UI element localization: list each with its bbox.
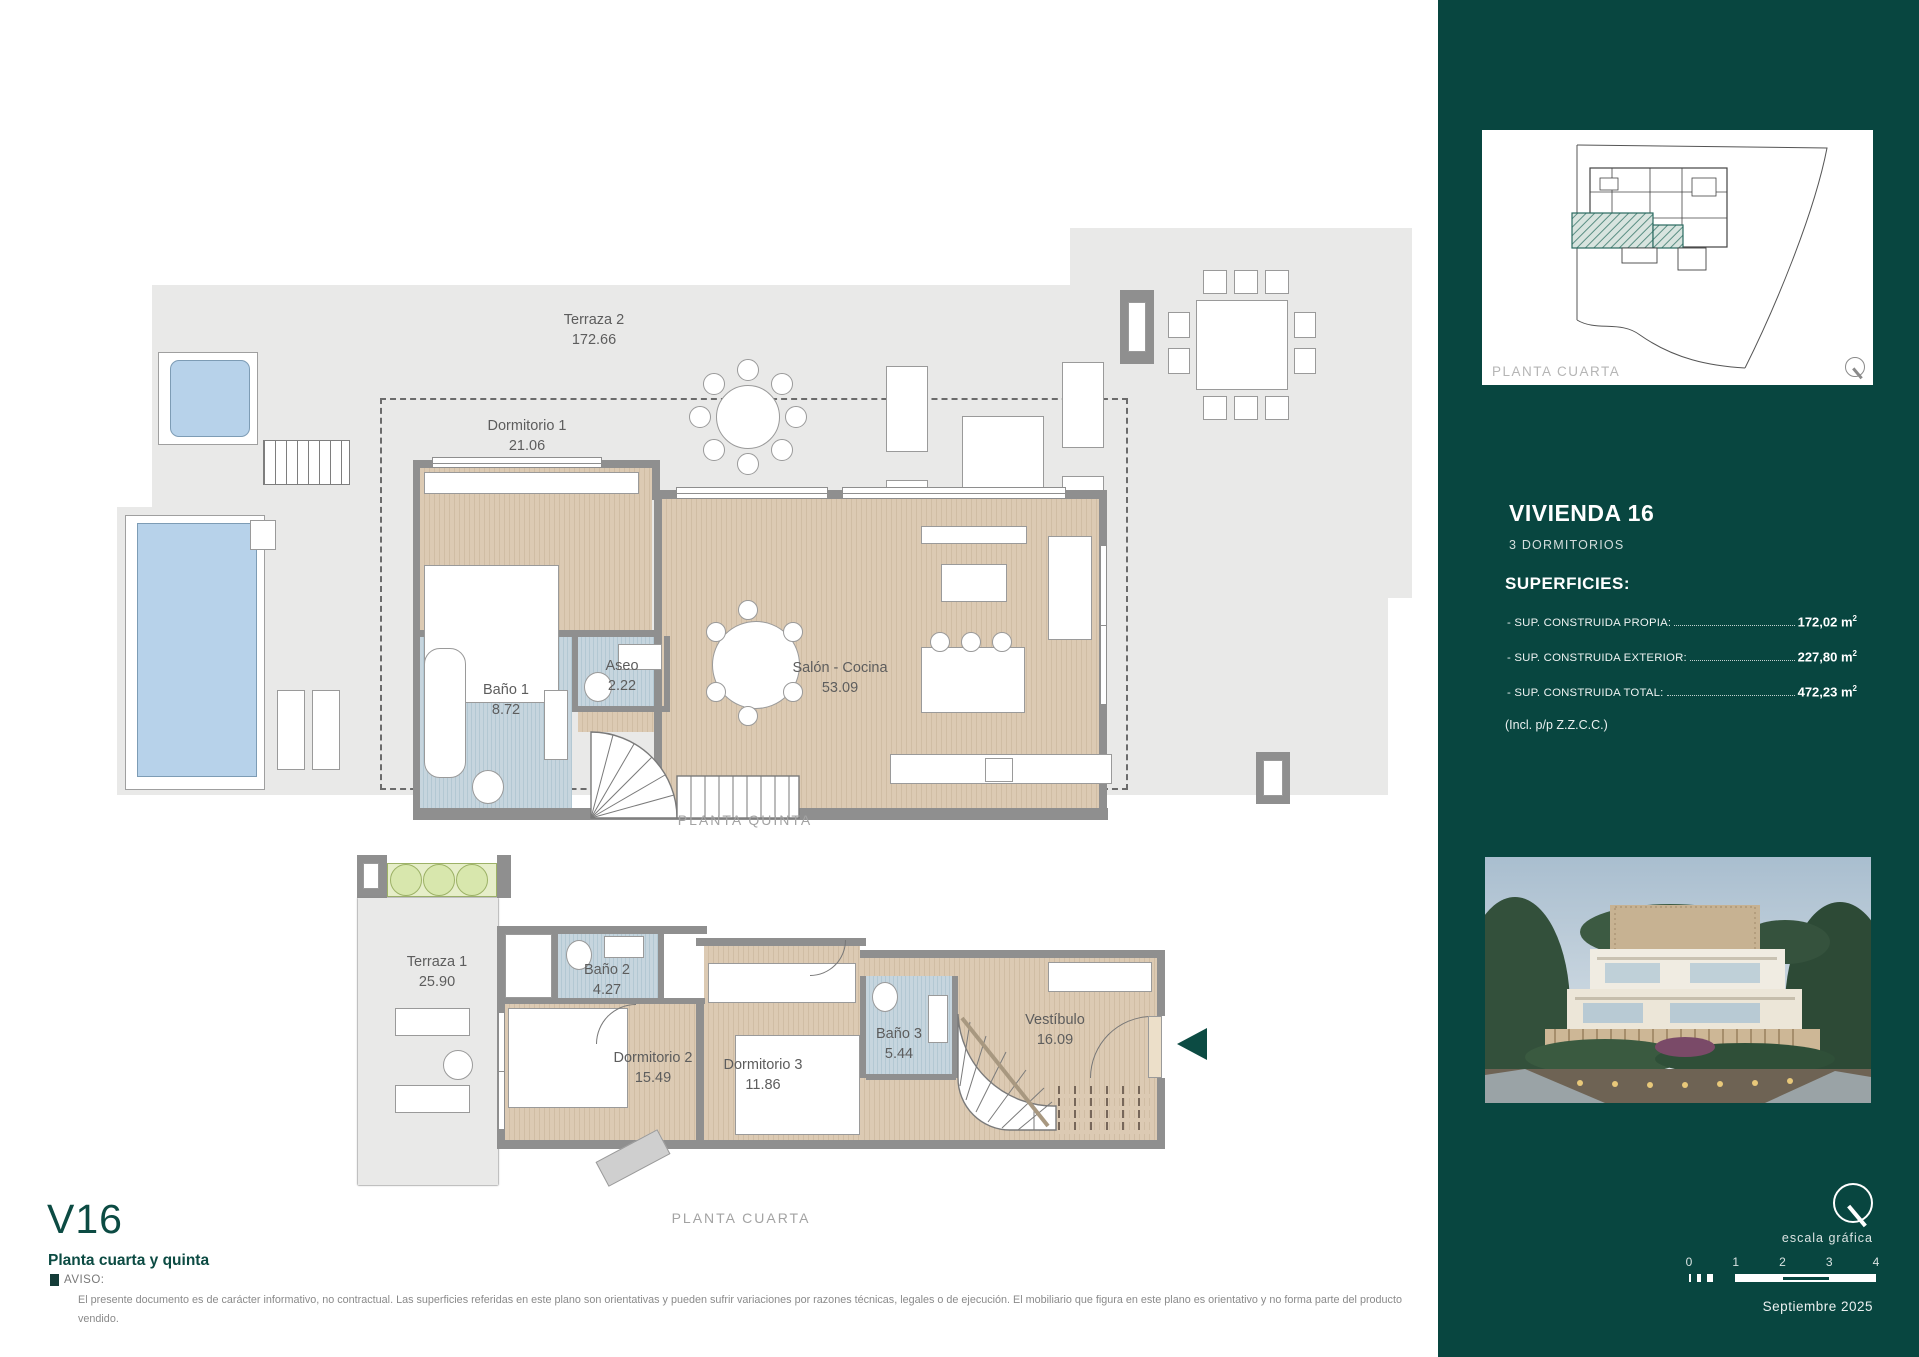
lounge-chair (1062, 362, 1104, 448)
room-label-dormitorio-3: Dormitorio 311.86 (724, 1055, 803, 1095)
q-logo-small-icon (1845, 357, 1865, 377)
sun-lounger (395, 1085, 470, 1113)
surface-row: - SUP. CONSTRUIDA TOTAL: 472,23 m2 (1507, 684, 1857, 699)
window (842, 487, 1066, 499)
window (1100, 545, 1107, 705)
terrace-chair (689, 406, 711, 428)
surfaces-heading: SUPERFICIES: (1505, 574, 1630, 594)
bathtub (424, 648, 466, 778)
salon-chair (706, 682, 726, 702)
toilet (872, 982, 898, 1012)
unit-floors-subtitle: Planta cuarta y quinta (48, 1252, 209, 1270)
toilet (472, 770, 504, 804)
stool (930, 632, 950, 652)
jacuzzi (170, 360, 250, 437)
stairs-upper (573, 728, 803, 820)
window (432, 457, 602, 468)
pool-ladder (250, 520, 276, 550)
sink (604, 936, 644, 958)
terrace-stairs (263, 440, 350, 485)
terraza-1-outline (358, 898, 498, 1185)
tv-console (921, 526, 1027, 544)
window (676, 487, 828, 499)
salon-chair (783, 622, 803, 642)
dining-chair (1265, 396, 1289, 420)
dining-chair (1168, 348, 1190, 374)
kitchen-island (921, 647, 1025, 713)
graphic-scale-bar: 0 1 2 3 4 (1689, 1255, 1876, 1285)
terrace-chair (785, 406, 807, 428)
room-label-dormitorio-2: Dormitorio 215.49 (614, 1048, 693, 1088)
terrace-chair (737, 453, 759, 475)
fireplace-inner (1128, 302, 1146, 352)
notice-bullet (50, 1274, 59, 1286)
window (498, 1012, 505, 1130)
sofa (1048, 536, 1092, 640)
room-label-aseo: Aseo2.22 (605, 656, 638, 696)
sun-lounger (277, 690, 305, 770)
kitchen-sink (985, 758, 1013, 782)
salon-chair (706, 622, 726, 642)
dining-chair (1234, 396, 1258, 420)
room-label-bano-3: Baño 35.44 (876, 1024, 922, 1064)
coffee-table (941, 564, 1007, 602)
bush (456, 864, 488, 896)
dining-chair (1294, 348, 1316, 374)
notice-label: AVISO: (64, 1274, 105, 1286)
door-leaf (1148, 1016, 1162, 1078)
graphic-scale-label: escala gráfica (1782, 1231, 1873, 1245)
salon-chair (738, 706, 758, 726)
surfaces-note: (Incl. p/p Z.Z.C.C.) (1505, 718, 1608, 732)
caption-planta-cuarta: PLANTA CUARTA (672, 1210, 811, 1226)
date-label: Septiembre 2025 (1763, 1299, 1873, 1314)
dining-chair (1294, 312, 1316, 338)
vanity (928, 995, 948, 1043)
room-label-terraza-2: Terraza 2172.66 (564, 310, 624, 350)
closet (708, 963, 856, 1003)
window (363, 863, 379, 889)
planter-inner (1263, 760, 1283, 796)
terrace-chair (771, 373, 793, 395)
outdoor-dining-table (1196, 300, 1288, 390)
stool (961, 632, 981, 652)
swimming-pool (137, 523, 257, 777)
lounge-chair (886, 366, 928, 452)
site-plan-caption: PLANTA CUARTA (1492, 364, 1620, 379)
vestibulo-tile-dashes (1058, 1086, 1154, 1134)
terrace-chair (771, 439, 793, 461)
dining-chair (1168, 312, 1190, 338)
bush (390, 864, 422, 896)
terrace-chair (737, 359, 759, 381)
utility-shower (505, 934, 552, 998)
sun-lounger (395, 1008, 470, 1036)
dining-chair (1203, 270, 1227, 294)
dining-chair (1234, 270, 1258, 294)
surface-row: - SUP. CONSTRUIDA EXTERIOR: 227,80 m2 (1507, 649, 1857, 664)
room-label-salon-cocina: Salón - Cocina53.09 (792, 658, 887, 698)
stool (992, 632, 1012, 652)
dining-chair (1265, 270, 1289, 294)
surface-row: - SUP. CONSTRUIDA PROPIA: 172,02 m2 (1507, 614, 1857, 629)
room-label-vestibulo: Vestíbulo16.09 (1025, 1010, 1085, 1050)
closet (424, 472, 639, 494)
notice-text: El presente documento es de carácter inf… (78, 1291, 1408, 1329)
plan-sheet: Terraza 2172.66 Dormitorio 121.06 Baño 1… (0, 0, 1919, 1357)
unit-title: VIVIENDA 16 (1509, 500, 1654, 527)
q-logo-icon (1833, 1183, 1873, 1223)
building-photo (1485, 857, 1871, 1103)
entrance-arrow-icon (1177, 1028, 1207, 1060)
hall-closet (1048, 962, 1152, 992)
site-plan-sketch (1482, 130, 1873, 385)
bush (423, 864, 455, 896)
site-plan-box: PLANTA CUARTA (1482, 130, 1873, 385)
unit-code: V16 (47, 1196, 123, 1243)
vanity (544, 690, 568, 760)
terrace-chair (703, 439, 725, 461)
room-label-bano-2: Baño 24.27 (584, 960, 630, 1000)
terrace-side-table (443, 1050, 473, 1080)
sidebar: PLANTA CUARTA VIVIENDA 16 3 DORMITORIOS … (1438, 0, 1919, 1357)
room-label-dormitorio-1: Dormitorio 121.06 (488, 416, 567, 456)
room-label-bano-1: Baño 18.72 (483, 680, 529, 720)
sun-lounger (312, 690, 340, 770)
unit-subtitle: 3 DORMITORIOS (1509, 538, 1624, 552)
caption-planta-quinta: PLANTA QUINTA (678, 812, 812, 828)
room-label-terraza-1: Terraza 125.90 (407, 952, 467, 992)
terrace-chair (703, 373, 725, 395)
dining-chair (1203, 396, 1227, 420)
terrace-round-table (716, 385, 780, 449)
salon-chair (738, 600, 758, 620)
